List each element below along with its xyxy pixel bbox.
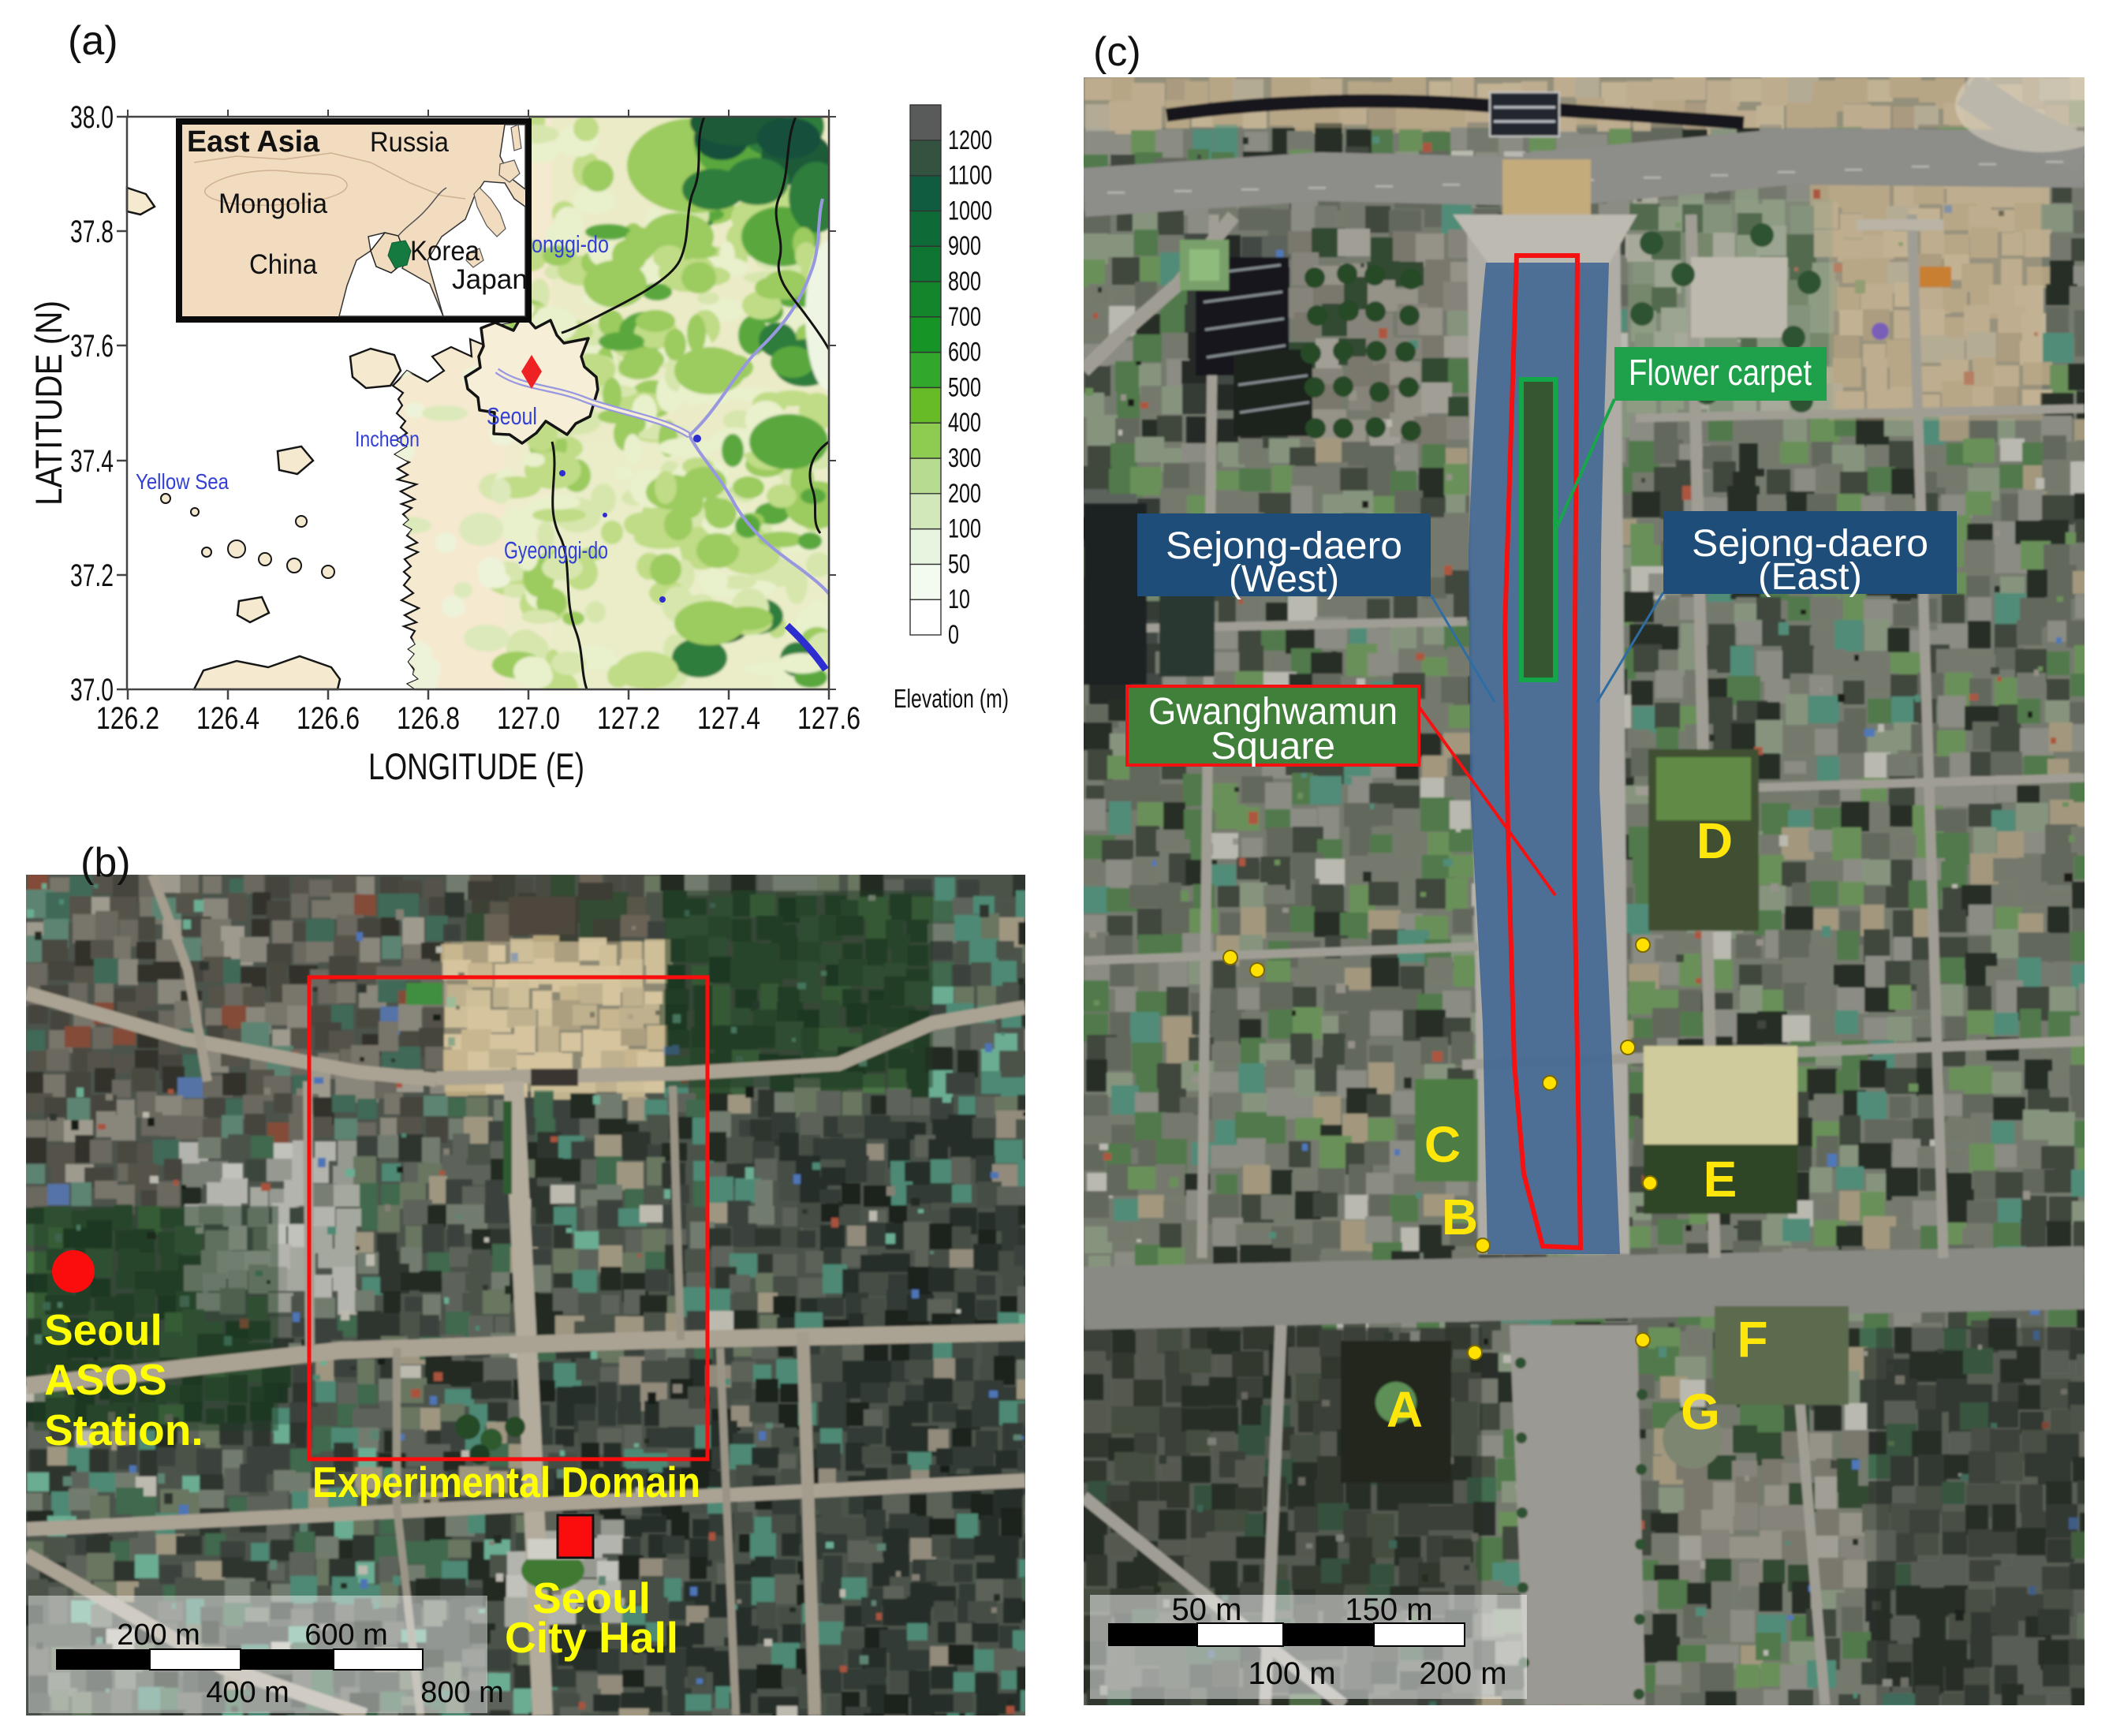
svg-text:800 m: 800 m [420, 1676, 504, 1709]
svg-text:50: 50 [948, 549, 970, 579]
svg-text:500: 500 [948, 372, 981, 402]
svg-text:10: 10 [948, 584, 970, 614]
svg-text:126.4: 126.4 [196, 701, 259, 736]
svg-text:Russia: Russia [370, 127, 449, 158]
svg-text:Japan: Japan [452, 264, 528, 295]
svg-text:Yellow Sea: Yellow Sea [136, 469, 229, 494]
svg-text:38.0: 38.0 [70, 100, 114, 135]
svg-text:200 m: 200 m [117, 1618, 200, 1652]
svg-text:127.2: 127.2 [597, 701, 660, 736]
svg-text:Elevation (m): Elevation (m) [894, 684, 1009, 713]
svg-text:Korea: Korea [410, 236, 480, 267]
svg-text:Gyeonggi-do: Gyeonggi-do [504, 536, 608, 564]
svg-text:900: 900 [948, 231, 981, 261]
svg-text:400 m: 400 m [206, 1676, 289, 1709]
svg-text:0: 0 [948, 620, 959, 650]
svg-text:City Hall: City Hall [505, 1613, 678, 1662]
svg-text:East Asia: East Asia [187, 125, 320, 159]
svg-text:Experimental Domain: Experimental Domain [312, 1458, 700, 1506]
svg-text:800: 800 [948, 267, 981, 297]
svg-text:Seoul: Seoul [487, 402, 537, 430]
svg-text:1200: 1200 [948, 125, 992, 155]
svg-text:ASOS: ASOS [44, 1355, 167, 1404]
svg-text:37.2: 37.2 [70, 558, 114, 593]
svg-text:127.4: 127.4 [697, 701, 760, 736]
svg-text:200: 200 [948, 479, 981, 509]
svg-text:onggi-do: onggi-do [532, 230, 609, 258]
svg-text:Seoul: Seoul [44, 1305, 162, 1354]
svg-text:1100: 1100 [948, 161, 992, 191]
svg-text:126.8: 126.8 [397, 701, 460, 736]
svg-text:126.6: 126.6 [297, 701, 360, 736]
svg-text:Incheon: Incheon [355, 427, 420, 451]
svg-text:400: 400 [948, 408, 981, 438]
svg-text:100: 100 [948, 514, 981, 544]
svg-text:700: 700 [948, 302, 981, 332]
svg-text:LONGITUDE (E): LONGITUDE (E) [368, 745, 584, 787]
svg-text:37.8: 37.8 [70, 215, 114, 249]
svg-text:China: China [249, 249, 317, 280]
svg-text:126.2: 126.2 [96, 701, 159, 736]
svg-text:300: 300 [948, 443, 981, 473]
svg-text:600: 600 [948, 338, 981, 368]
svg-text:1000: 1000 [948, 196, 992, 226]
svg-text:37.6: 37.6 [70, 329, 114, 364]
svg-text:127.0: 127.0 [497, 701, 560, 736]
svg-text:37.4: 37.4 [70, 444, 114, 479]
svg-text:600 m: 600 m [304, 1618, 388, 1652]
svg-text:Station.: Station. [44, 1406, 203, 1454]
svg-text:127.6: 127.6 [797, 701, 860, 736]
svg-text:LATITUDE (N): LATITUDE (N) [28, 301, 69, 506]
svg-text:Mongolia: Mongolia [218, 189, 328, 219]
